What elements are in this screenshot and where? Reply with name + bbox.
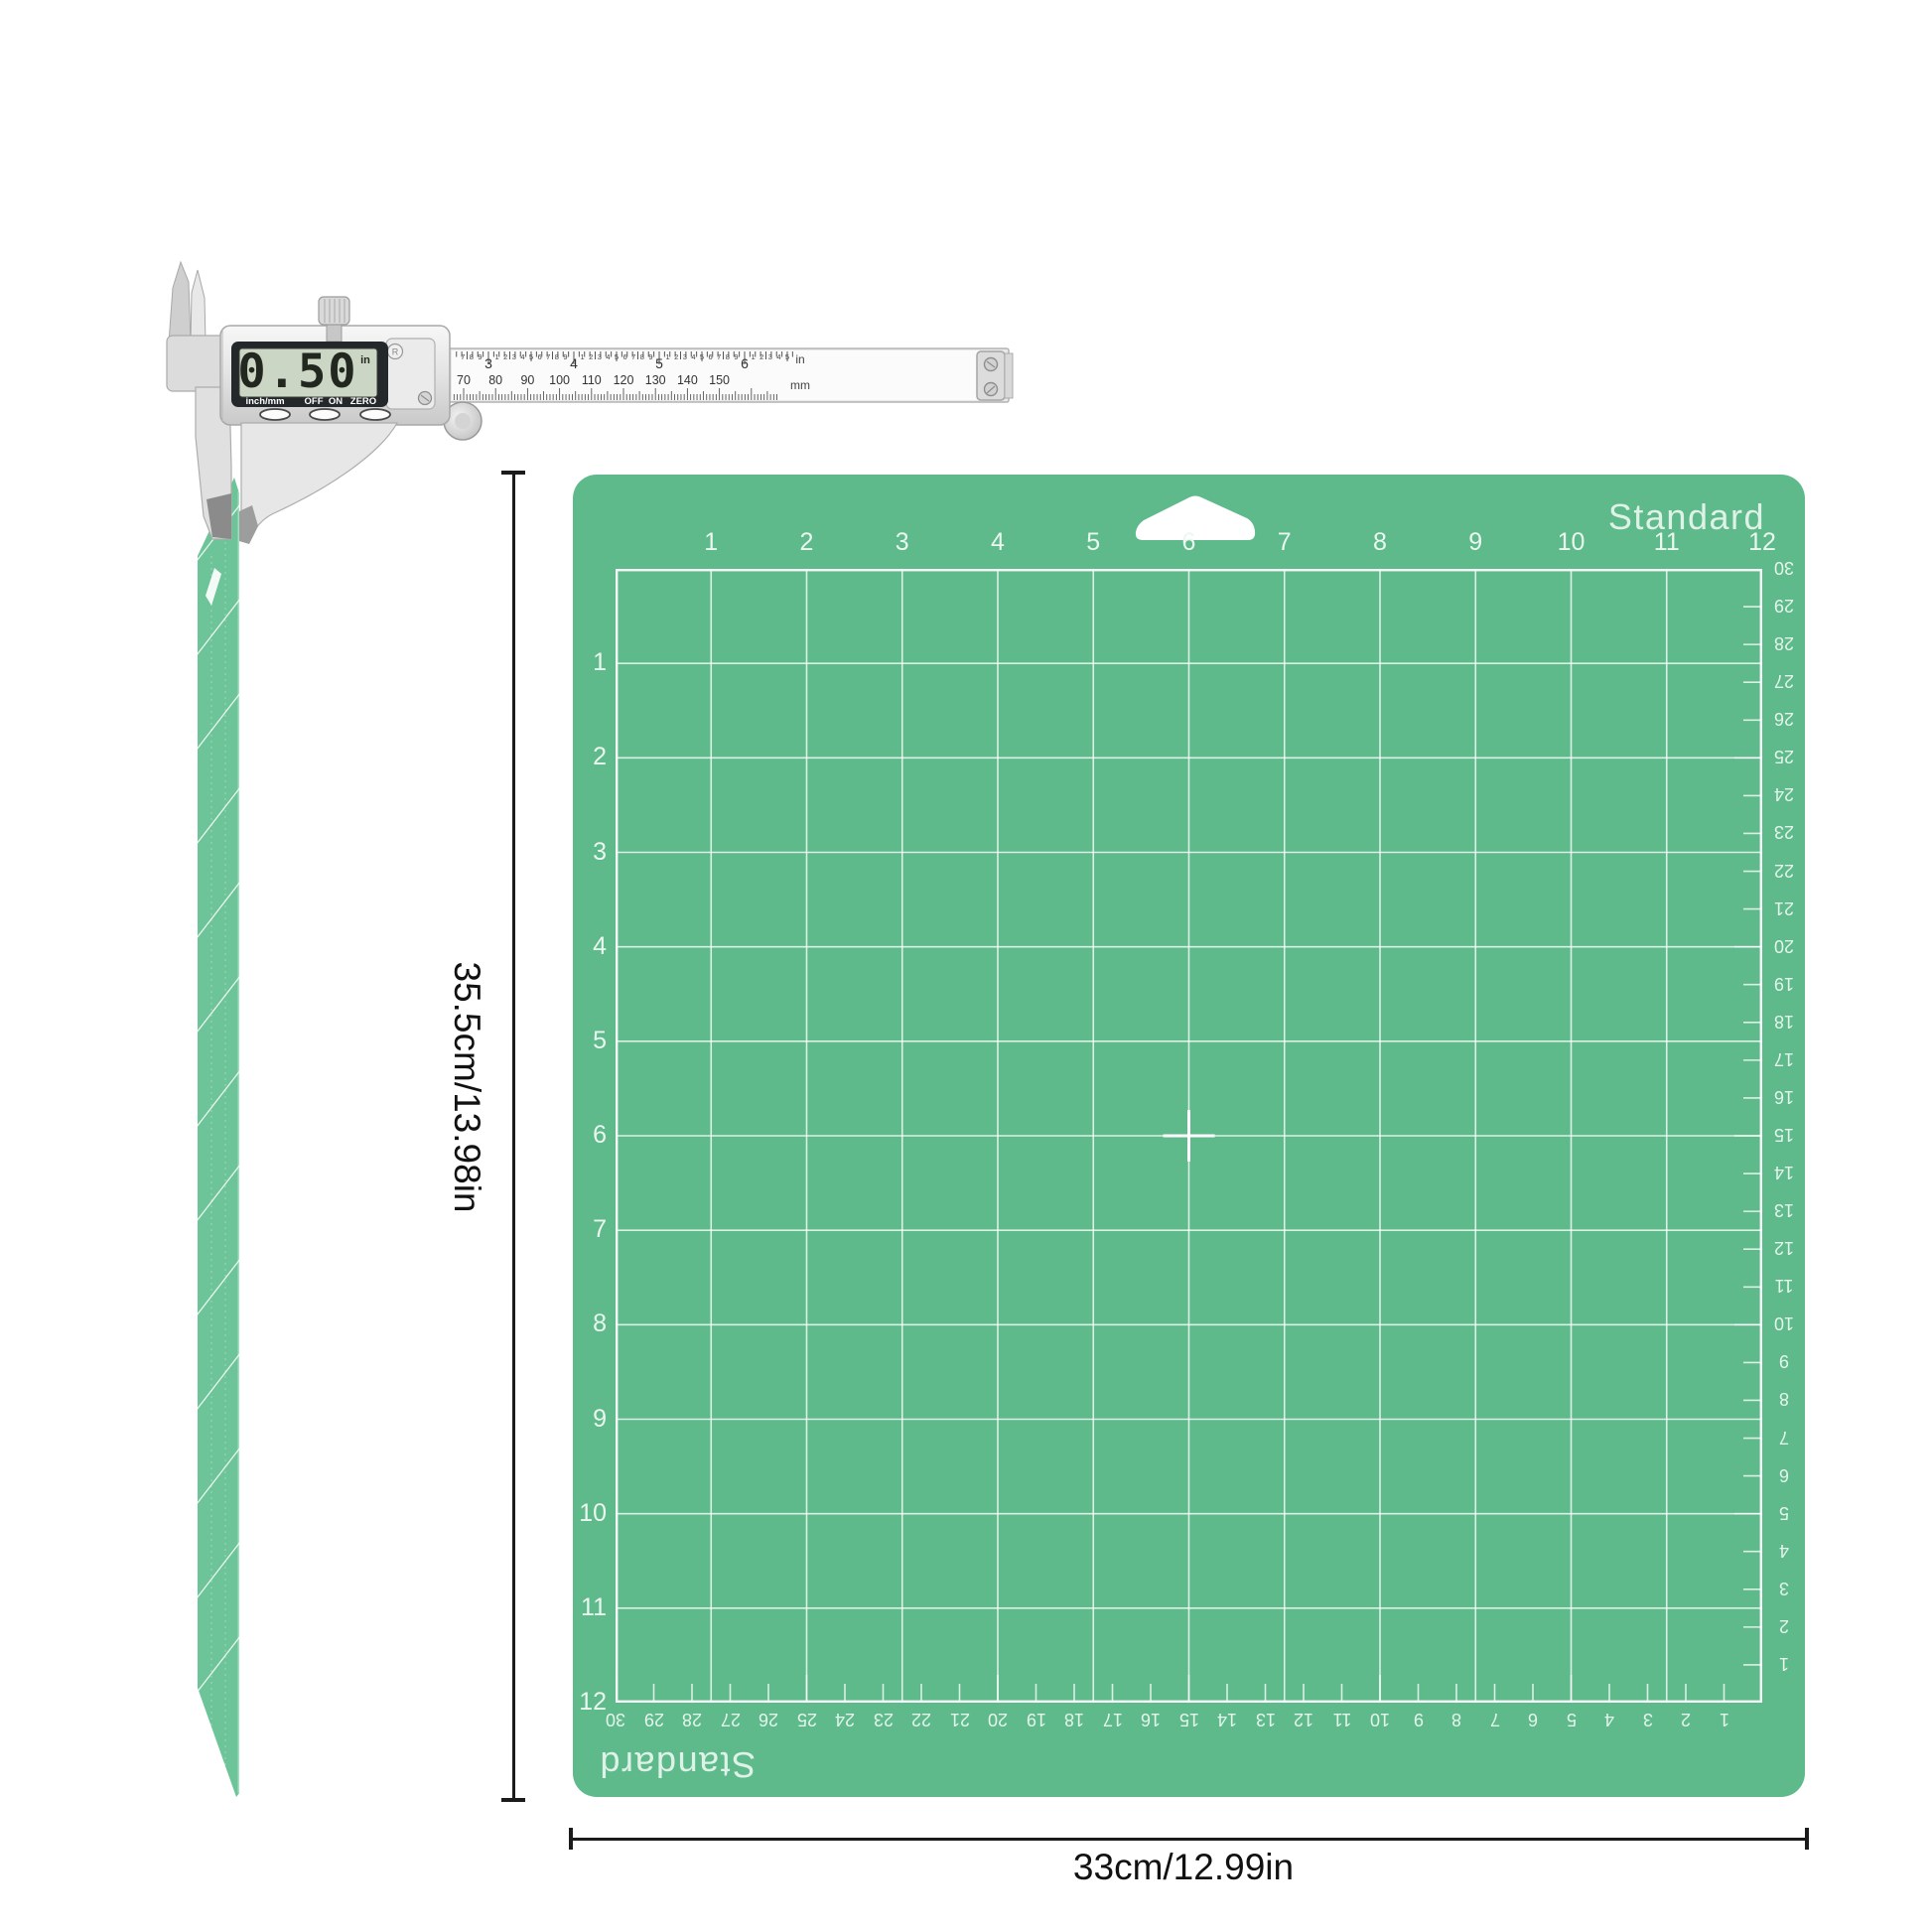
mat-cm-number-right: 20 bbox=[1768, 937, 1800, 955]
mat-cm-number-right: 17 bbox=[1768, 1050, 1800, 1068]
caliper-button-onoff[interactable] bbox=[310, 409, 340, 420]
mat-cm-number-bottom: 25 bbox=[791, 1711, 823, 1728]
mm-scale-number: 140 bbox=[677, 373, 698, 387]
inch-tenth-digit: 3 bbox=[768, 352, 772, 361]
mat-cm-number-bottom: 24 bbox=[829, 1711, 861, 1728]
mat-cm-number-bottom: 20 bbox=[982, 1711, 1014, 1728]
mat-cm-number-right: 18 bbox=[1768, 1013, 1800, 1031]
caliper-button-label-inchmm: inch/mm bbox=[245, 396, 284, 407]
mat-column-number: 2 bbox=[791, 530, 823, 555]
mat-column-number: 7 bbox=[1269, 530, 1301, 555]
inch-tenth-digit: 6 bbox=[623, 352, 627, 361]
mat-row-number: 8 bbox=[577, 1311, 607, 1336]
inch-unit-label: in bbox=[795, 352, 804, 366]
mat-cm-number-bottom: 5 bbox=[1556, 1711, 1587, 1728]
inch-tenth-digit: 4 bbox=[776, 352, 780, 361]
inch-tenth-digit: 5 bbox=[529, 352, 533, 361]
caliper-inside-jaw-fixed bbox=[169, 262, 191, 343]
height-dimension-line bbox=[512, 474, 515, 1800]
width-dimension-line bbox=[571, 1838, 1807, 1841]
mat-column-number: 1 bbox=[695, 530, 727, 555]
mat-cm-number-bottom: 22 bbox=[905, 1711, 937, 1728]
inch-tenth-digit: 1 bbox=[581, 352, 585, 361]
mat-cm-number-bottom: 26 bbox=[753, 1711, 784, 1728]
inch-tenth-digit: 7 bbox=[461, 352, 465, 361]
mat-cm-number-bottom: 9 bbox=[1403, 1711, 1435, 1728]
mat-cm-number-bottom: 17 bbox=[1097, 1711, 1129, 1728]
width-dimension-cap-right bbox=[1805, 1828, 1809, 1850]
inch-tenth-digit: 5 bbox=[785, 352, 789, 361]
mat-cm-number-right: 22 bbox=[1768, 862, 1800, 880]
mat-cm-number-bottom: 12 bbox=[1288, 1711, 1319, 1728]
inch-scale-number: 3 bbox=[484, 355, 492, 371]
mat-column-number: 11 bbox=[1651, 530, 1683, 555]
mat-cm-number-bottom: 8 bbox=[1441, 1711, 1472, 1728]
mat-cm-number-bottom: 6 bbox=[1517, 1711, 1549, 1728]
mat-cm-number-bottom: 4 bbox=[1593, 1711, 1625, 1728]
caliper-inside-jaw-slider bbox=[191, 270, 206, 343]
inch-tenth-digit: 2 bbox=[503, 352, 507, 361]
mat-row-number: 4 bbox=[577, 934, 607, 959]
width-dimension-label: 33cm/12.99in bbox=[1073, 1847, 1294, 1888]
inch-tenth-digit: 1 bbox=[666, 352, 670, 361]
mat-brand-bottom: Standard bbox=[599, 1743, 756, 1785]
mat-cm-number-bottom: 3 bbox=[1632, 1711, 1664, 1728]
mat-cm-number-right: 6 bbox=[1768, 1466, 1800, 1484]
mat-cm-number-bottom: 15 bbox=[1173, 1711, 1205, 1728]
mat-row-number: 11 bbox=[577, 1595, 607, 1620]
mat-cm-number-right: 26 bbox=[1768, 710, 1800, 728]
inch-tenth-digit: 6 bbox=[538, 352, 542, 361]
mat-column-number: 8 bbox=[1364, 530, 1396, 555]
mat-column-number: 5 bbox=[1077, 530, 1109, 555]
mat-cm-number-bottom: 14 bbox=[1211, 1711, 1243, 1728]
inch-tenth-digit: 7 bbox=[631, 352, 635, 361]
mat-cm-number-right: 2 bbox=[1768, 1617, 1800, 1635]
mat-row-number: 9 bbox=[577, 1407, 607, 1432]
height-dimension-cap-top bbox=[501, 471, 525, 475]
inch-tenth-digit: 2 bbox=[759, 352, 763, 361]
mat-cm-number-right: 29 bbox=[1768, 597, 1800, 615]
inch-tenth-digit: 2 bbox=[589, 352, 593, 361]
inch-tenth-digit: 9 bbox=[478, 352, 482, 361]
inch-tenth-digit: 6 bbox=[709, 352, 713, 361]
mat-cm-number-bottom: 7 bbox=[1479, 1711, 1511, 1728]
mat-cm-number-bottom: 1 bbox=[1709, 1711, 1740, 1728]
inch-tenth-digit: 7 bbox=[546, 352, 550, 361]
mat-cm-number-bottom: 11 bbox=[1326, 1711, 1358, 1728]
mat-cm-number-right: 19 bbox=[1768, 975, 1800, 993]
inch-tenth-digit: 3 bbox=[512, 352, 516, 361]
inch-tenth-digit: 4 bbox=[691, 352, 695, 361]
mat-cm-number-right: 16 bbox=[1768, 1088, 1800, 1106]
inch-scale-number: 6 bbox=[741, 355, 749, 371]
mat-cm-number-right: 4 bbox=[1768, 1542, 1800, 1560]
caliper-display-unit: in bbox=[360, 354, 370, 366]
mat-cm-number-bottom: 28 bbox=[676, 1711, 708, 1728]
mat-column-number: 3 bbox=[887, 530, 918, 555]
mat-row-number: 1 bbox=[577, 650, 607, 675]
mat-row-number: 5 bbox=[577, 1029, 607, 1053]
mm-unit-label: mm bbox=[790, 378, 810, 392]
mat-cm-number-bottom: 19 bbox=[1021, 1711, 1052, 1728]
caliper-button-label-on: ON bbox=[329, 396, 343, 407]
mat-cm-number-right: 21 bbox=[1768, 899, 1800, 917]
mat-column-number: 4 bbox=[982, 530, 1014, 555]
mat-row-number: 10 bbox=[577, 1501, 607, 1526]
mat-cm-number-right: 27 bbox=[1768, 672, 1800, 690]
mat-cm-number-bottom: 16 bbox=[1135, 1711, 1167, 1728]
height-dimension-cap-bottom bbox=[501, 1798, 525, 1802]
inch-tenth-digit: 8 bbox=[470, 352, 474, 361]
mm-scale-number: 110 bbox=[582, 373, 602, 387]
inch-tenth-digit: 5 bbox=[615, 352, 619, 361]
mm-scale-number: 90 bbox=[520, 373, 534, 387]
inch-tenth-digit: 8 bbox=[555, 352, 559, 361]
inch-tenth-digit: 7 bbox=[717, 352, 721, 361]
registered-mark-letter: R bbox=[392, 347, 399, 357]
mat-cm-number-bottom: 13 bbox=[1250, 1711, 1282, 1728]
product-image: 345678912345678912345678912345678912345i… bbox=[0, 0, 1932, 1932]
mat-cm-number-right: 12 bbox=[1768, 1239, 1800, 1257]
mm-scale-number: 100 bbox=[549, 373, 570, 387]
inch-tenth-digit: 5 bbox=[700, 352, 704, 361]
mat-column-number: 9 bbox=[1459, 530, 1491, 555]
mat-cm-number-right: 25 bbox=[1768, 748, 1800, 765]
caliper-outside-jaw-slider bbox=[241, 423, 397, 541]
mat-cm-number-right: 5 bbox=[1768, 1504, 1800, 1522]
inch-tenth-digit: 9 bbox=[648, 352, 652, 361]
inch-tenth-digit: 9 bbox=[563, 352, 567, 361]
caliper-button-mode[interactable] bbox=[260, 409, 290, 420]
mat-side-surface bbox=[198, 478, 239, 1797]
mat-cm-number-right: 11 bbox=[1768, 1277, 1800, 1295]
mat-brand-top: Standard bbox=[1608, 496, 1765, 538]
mat-cm-number-bottom: 21 bbox=[944, 1711, 976, 1728]
mat-cm-number-right: 14 bbox=[1768, 1164, 1800, 1181]
mat-cm-number-bottom: 10 bbox=[1364, 1711, 1396, 1728]
mat-cm-number-bottom: 18 bbox=[1058, 1711, 1090, 1728]
inch-tenth-digit: 4 bbox=[520, 352, 524, 361]
mat-cm-number-bottom: 2 bbox=[1670, 1711, 1702, 1728]
mm-scale-number: 120 bbox=[614, 373, 634, 387]
caliper-button-label-off: OFF bbox=[305, 396, 324, 407]
inch-tenth-digit: 3 bbox=[683, 352, 687, 361]
mat-cm-number-right: 1 bbox=[1768, 1655, 1800, 1673]
mat-cm-number-right: 9 bbox=[1768, 1352, 1800, 1370]
mm-scale-number: 150 bbox=[709, 373, 730, 387]
cutting-mat: Standard Standard 1234567891011121234567… bbox=[573, 475, 1805, 1797]
mat-grid bbox=[616, 569, 1762, 1703]
mat-cm-number-bottom: 30 bbox=[600, 1711, 631, 1728]
mat-cm-number-right: 23 bbox=[1768, 823, 1800, 841]
inch-tenth-digit: 8 bbox=[640, 352, 644, 361]
caliper-button-zero[interactable] bbox=[360, 409, 390, 420]
mat-cm-number-right: 15 bbox=[1768, 1126, 1800, 1144]
mat-row-number: 3 bbox=[577, 840, 607, 865]
mat-cm-number-bottom: 23 bbox=[868, 1711, 899, 1728]
mat-row-number: 7 bbox=[577, 1217, 607, 1242]
mat-cm-number-right: 13 bbox=[1768, 1201, 1800, 1219]
mat-column-number: 6 bbox=[1173, 530, 1205, 555]
mat-cm-number-right: 30 bbox=[1768, 559, 1800, 577]
mm-scale-number: 130 bbox=[645, 373, 666, 387]
mat-cm-number-right: 10 bbox=[1768, 1314, 1800, 1332]
caliper-button-label-zero: ZERO bbox=[350, 396, 376, 407]
inch-tenth-digit: 1 bbox=[495, 352, 499, 361]
mat-side-view bbox=[197, 478, 240, 1797]
inch-tenth-digit: 1 bbox=[752, 352, 756, 361]
inch-tenth-digit: 8 bbox=[726, 352, 730, 361]
mat-cm-number-bottom: 29 bbox=[638, 1711, 670, 1728]
inch-tenth-digit: 4 bbox=[606, 352, 610, 361]
mm-scale-number: 70 bbox=[457, 373, 471, 387]
mm-scale-number: 80 bbox=[488, 373, 502, 387]
mat-row-number: 6 bbox=[577, 1123, 607, 1148]
mat-cm-number-right: 8 bbox=[1768, 1390, 1800, 1408]
inch-tenth-digit: 2 bbox=[674, 352, 678, 361]
mat-cm-number-right: 24 bbox=[1768, 785, 1800, 803]
caliper-display-value: 0.50 bbox=[237, 345, 357, 399]
inch-scale-number: 5 bbox=[655, 355, 663, 371]
inch-tenth-digit: 9 bbox=[734, 352, 738, 361]
mat-column-number: 10 bbox=[1556, 530, 1587, 555]
mat-cm-number-right: 7 bbox=[1768, 1429, 1800, 1447]
mat-cm-number-right: 3 bbox=[1768, 1580, 1800, 1597]
mat-column-number: 12 bbox=[1746, 530, 1778, 555]
inch-scale-number: 4 bbox=[570, 355, 578, 371]
mat-cm-number-right: 28 bbox=[1768, 634, 1800, 652]
mat-row-number: 2 bbox=[577, 745, 607, 769]
mat-cm-number-bottom: 27 bbox=[715, 1711, 747, 1728]
height-dimension-label: 35.5cm/13.98in bbox=[446, 961, 487, 1212]
inch-tenth-digit: 3 bbox=[598, 352, 602, 361]
width-dimension-cap-left bbox=[569, 1828, 573, 1850]
